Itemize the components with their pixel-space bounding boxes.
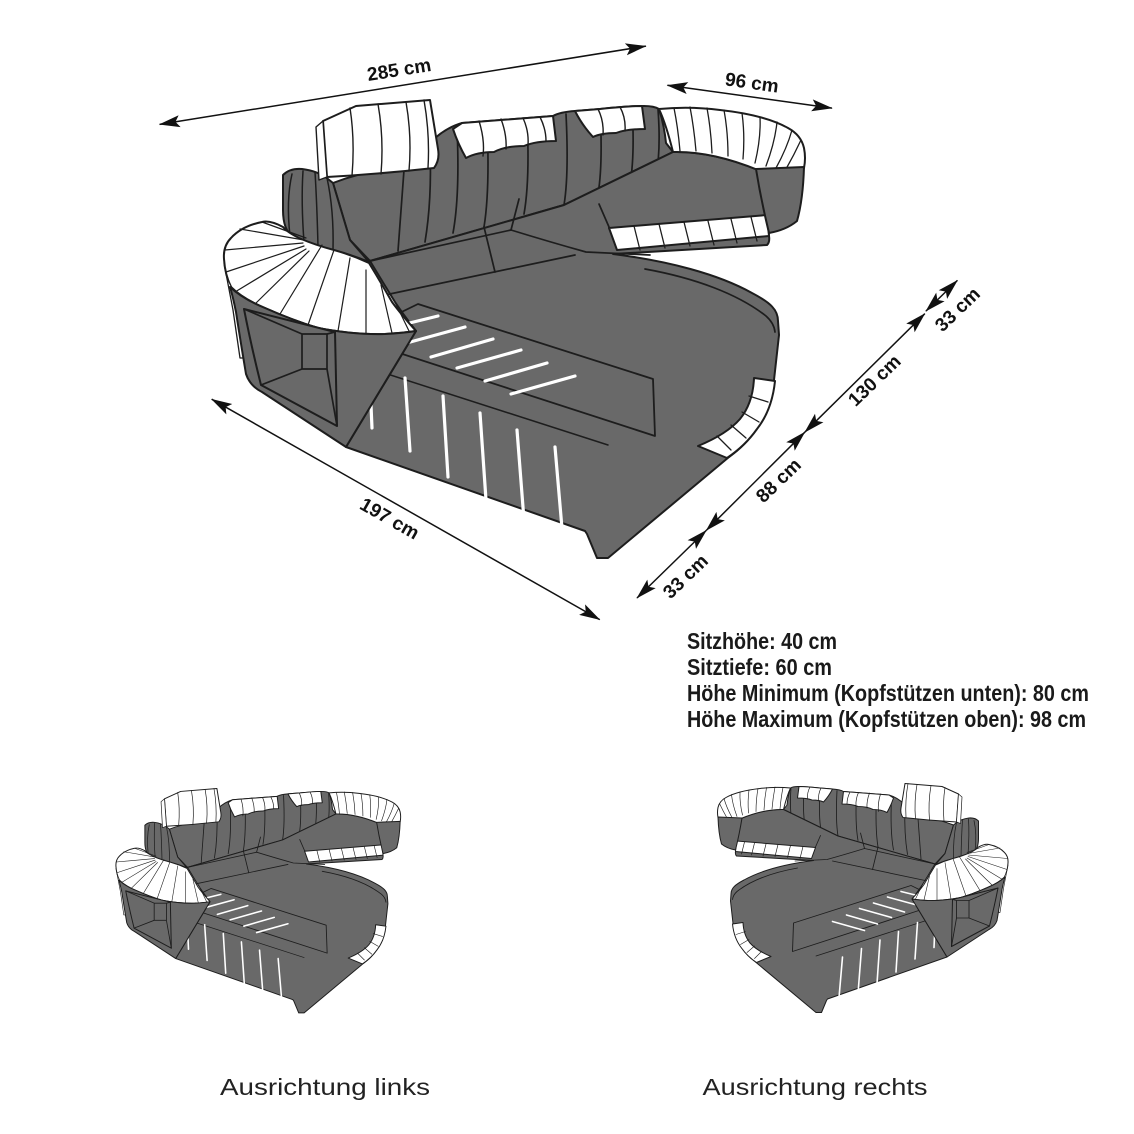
svg-text:Sitzhöhe: 40 cm: Sitzhöhe: 40 cm [687,628,837,654]
svg-text:Höhe Minimum (Kopfstützen unte: Höhe Minimum (Kopfstützen unten): 80 cm [687,680,1089,706]
svg-text:Ausrichtung links: Ausrichtung links [220,1074,430,1100]
svg-text:Höhe Maximum (Kopfstützen oben: Höhe Maximum (Kopfstützen oben): 98 cm [687,706,1086,732]
svg-text:197 cm: 197 cm [356,494,422,544]
svg-text:130 cm: 130 cm [845,351,906,411]
svg-text:Ausrichtung rechts: Ausrichtung rechts [703,1074,928,1100]
svg-text:33 cm: 33 cm [931,284,984,337]
svg-text:33 cm: 33 cm [659,551,712,604]
svg-text:88 cm: 88 cm [752,455,805,508]
svg-text:96 cm: 96 cm [724,69,780,97]
svg-text:Sitztiefe: 60 cm: Sitztiefe: 60 cm [687,654,832,680]
